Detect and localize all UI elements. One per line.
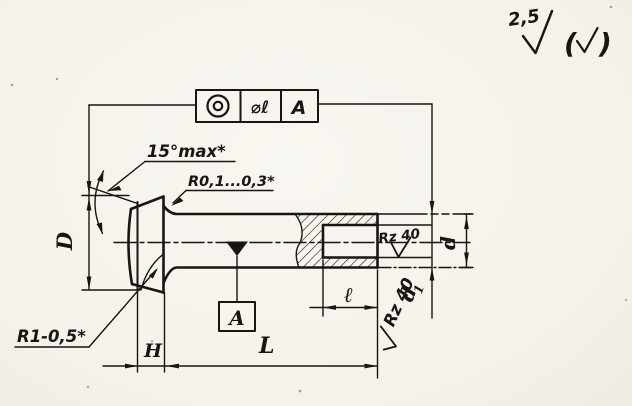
head-cone-bottom-arc — [141, 255, 163, 291]
dim-label-L: L — [258, 333, 274, 359]
concentricity-icon — [208, 96, 229, 117]
datum-triangle-icon — [226, 242, 248, 257]
edge-radius-text: R1-0,5* — [17, 327, 86, 346]
shank-bottom-line — [164, 268, 378, 284]
head-angle-text: 15°max* — [147, 142, 226, 161]
surface-finish-note: 2,5 ( ) — [507, 6, 612, 60]
roughness-bore-text: Rz 40 — [378, 226, 421, 247]
dim-label-H: H — [143, 340, 163, 362]
shank-top-line — [164, 206, 378, 214]
fcf-tolerance: ⌀ℓ — [251, 98, 269, 118]
dim-label-l: ℓ — [344, 282, 353, 307]
datum-a: A — [219, 242, 255, 332]
dim-head-diameter: D — [52, 105, 140, 290]
technical-drawing: A ⌀ℓ A D d 1 — [0, 0, 632, 406]
scan-specks — [11, 6, 627, 393]
fcf-datum-ref: A — [290, 97, 307, 119]
dim-label-D: D — [52, 231, 77, 251]
callout-junction-fillet: R0,1...0,3* — [171, 174, 275, 206]
feature-control-frame: ⌀ℓ A — [89, 90, 432, 122]
section-hatching — [295, 214, 378, 268]
paren-close: ) — [598, 27, 612, 60]
roughness-bore: Rz 40 — [378, 226, 421, 257]
finish-value: 2,5 — [507, 6, 542, 31]
head-left-face — [128, 209, 132, 284]
drawing-sheet: A ⌀ℓ A D d 1 — [0, 0, 632, 406]
dim-label-d: d — [436, 236, 460, 250]
part-outline — [128, 197, 377, 293]
dim-bore-depth: ℓ — [310, 260, 378, 378]
junction-fillet-text: R0,1...0,3* — [188, 174, 275, 190]
datum-label: A — [227, 306, 245, 330]
dim-right-diameters: d 1 d — [378, 104, 474, 318]
paren-open: ( — [564, 27, 578, 60]
roughness-check-icon — [577, 28, 598, 52]
